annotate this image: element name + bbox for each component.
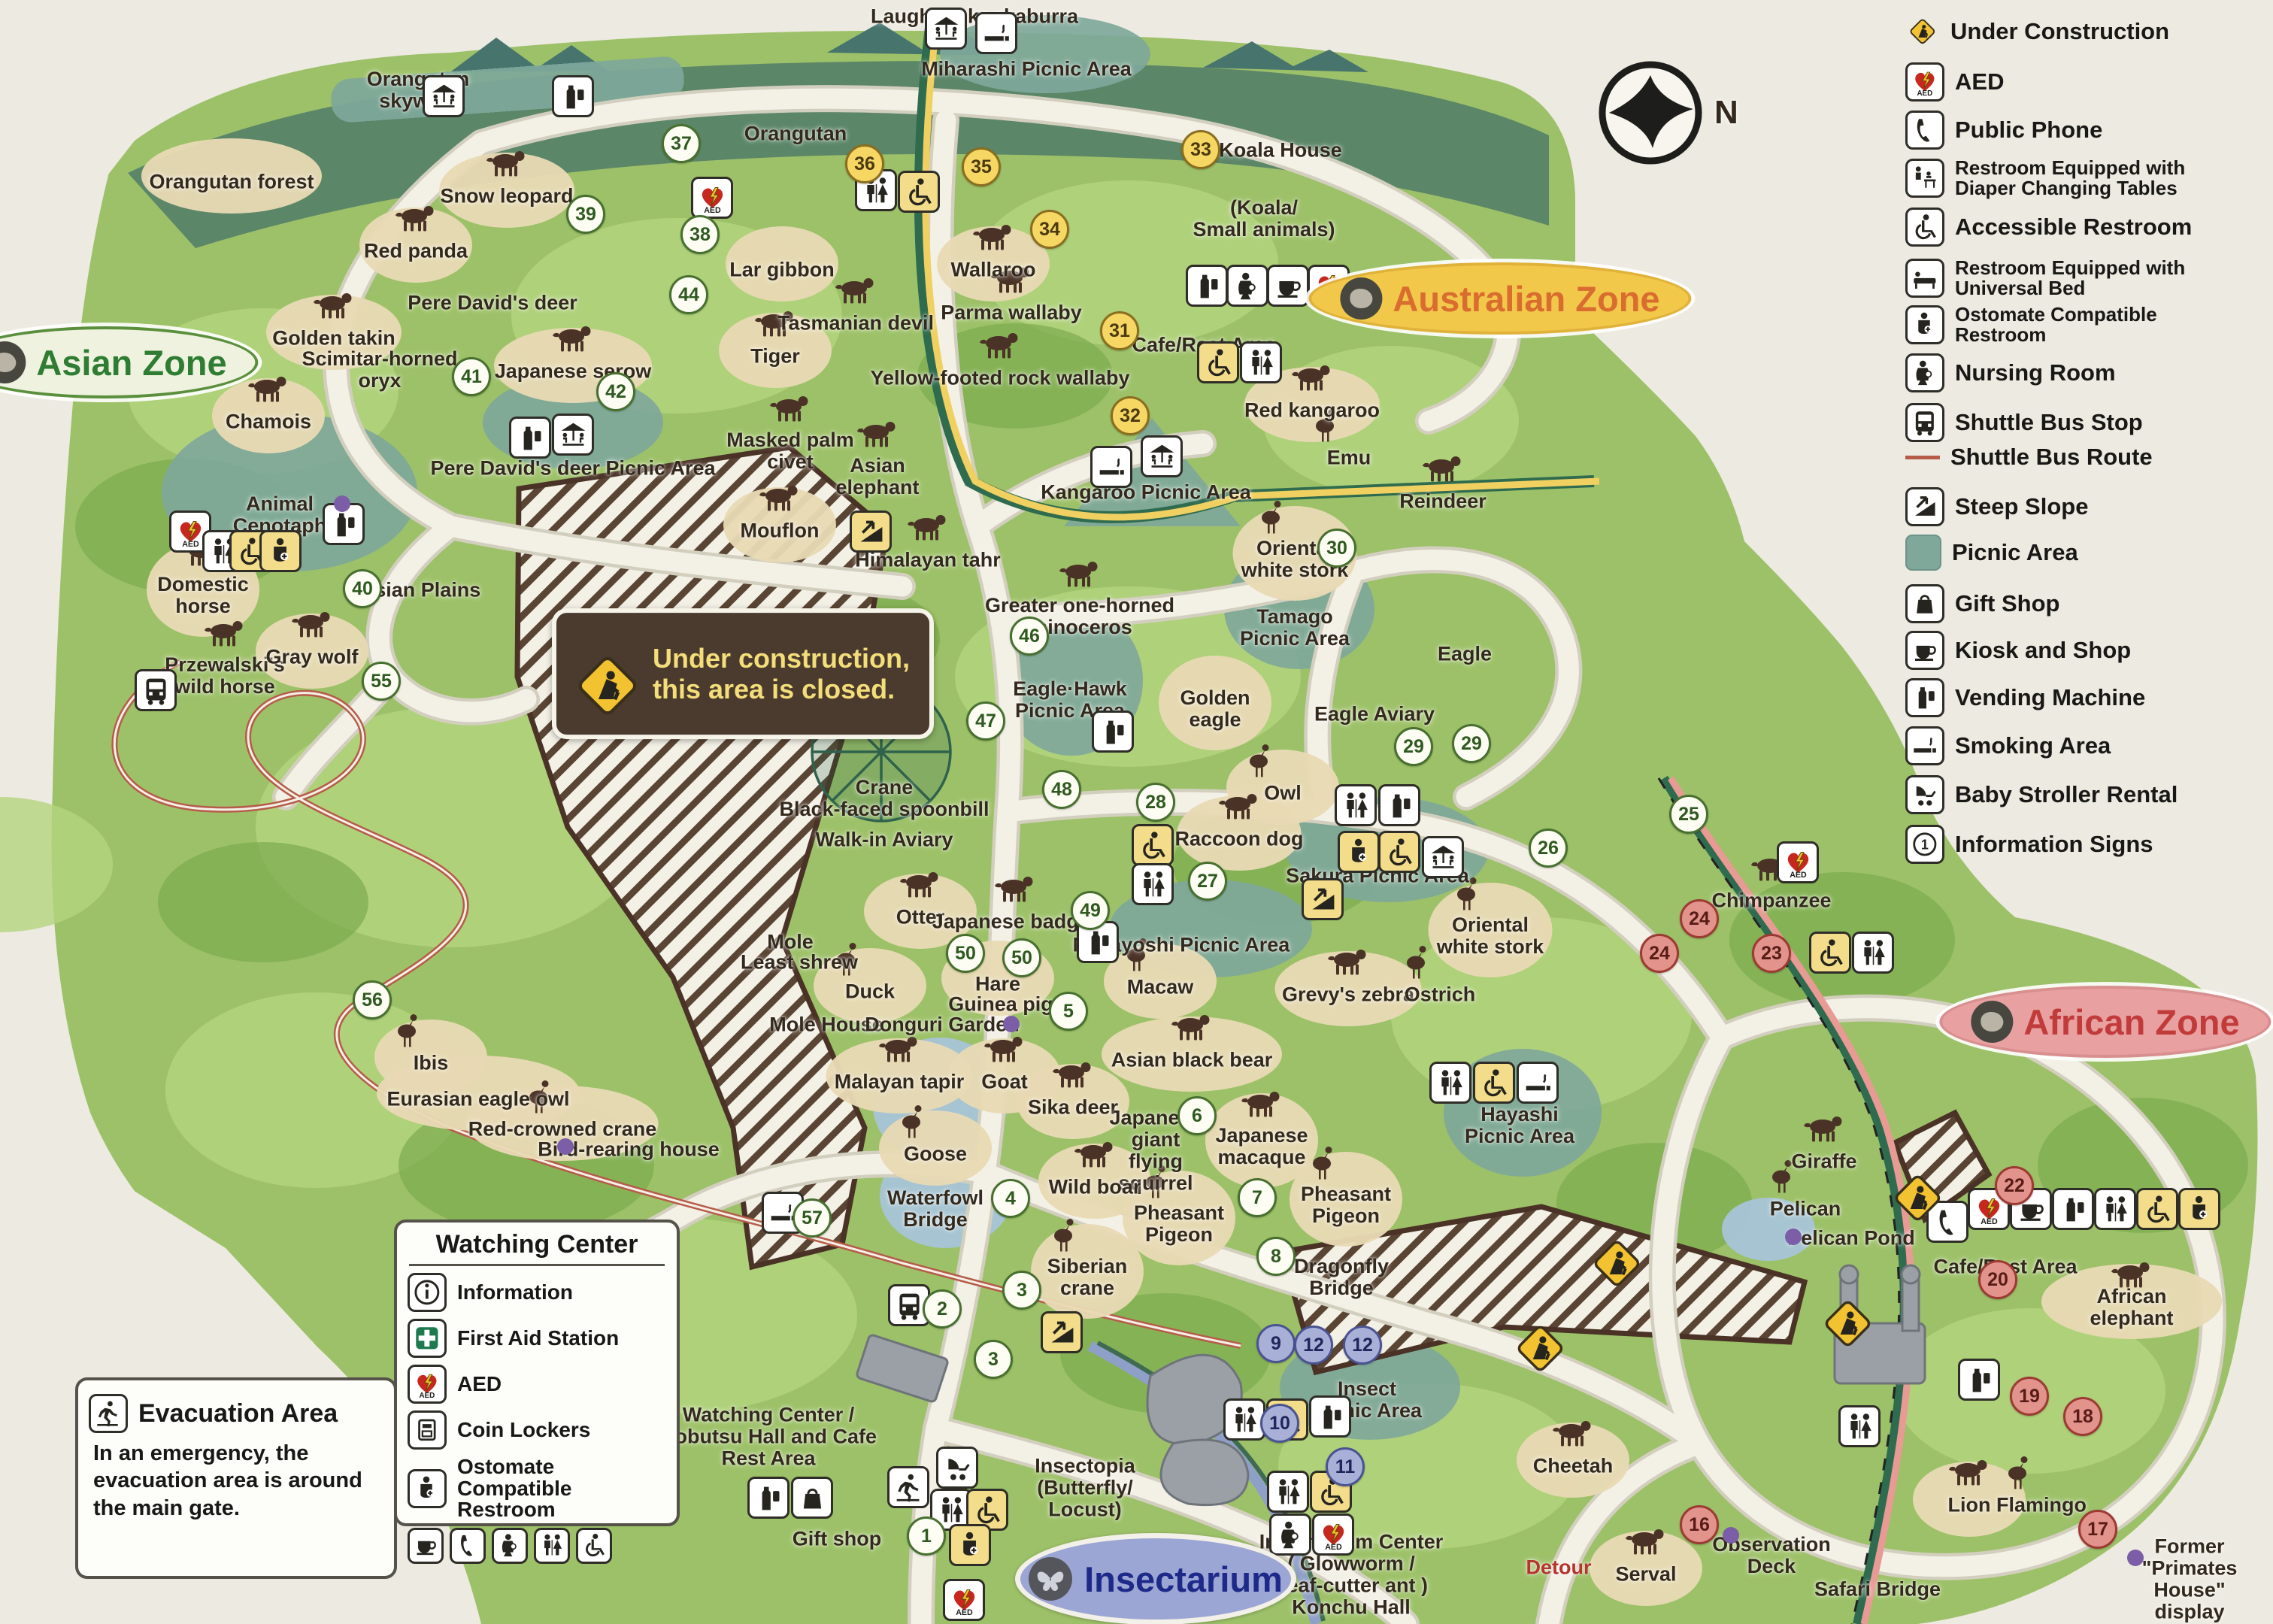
- legend-label: Nursing Room: [1955, 361, 2116, 385]
- animal-bird-silhouette: [392, 1012, 424, 1053]
- map-label: Pere David's deer: [408, 292, 577, 314]
- watching-center-legend-box: Watching CenterInformationFirst Aid Stat…: [394, 1220, 680, 1526]
- legend-item: AEDAED: [1905, 62, 2004, 101]
- animal-quadruped-silhouette: [483, 147, 530, 184]
- map-label: Snow leopard: [440, 186, 573, 208]
- map-label: Miharashi Picnic Area: [921, 59, 1132, 80]
- watching-center-footer-icons: [408, 1528, 666, 1564]
- watching-center-item-label: AED: [457, 1374, 502, 1395]
- zoo-map-canvas: N Under construction, this area is close…: [0, 0, 2273, 1624]
- numbered-marker: 26: [1529, 829, 1568, 868]
- map-label: Former "Primates House" display: [2142, 1535, 2238, 1622]
- animal-quadruped-silhouette: [767, 392, 814, 429]
- animal-quadruped-silhouette: [970, 221, 1017, 258]
- animal-bird-silhouette: [1256, 498, 1288, 540]
- map-label: Macaw: [1127, 977, 1194, 998]
- vending-icon: [1958, 1359, 2000, 1401]
- animal-quadruped-silhouette: [992, 873, 1038, 910]
- animal-quadruped-silhouette: [1056, 558, 1103, 595]
- numbered-marker: 25: [1669, 795, 1708, 834]
- numbered-marker: 39: [566, 195, 605, 234]
- aed-icon: AED: [1905, 62, 1944, 101]
- numbered-marker: 34: [1030, 210, 1069, 249]
- dot-icon: [2127, 1550, 2144, 1566]
- accessible-icon: [1473, 1062, 1515, 1104]
- watching-center-item-label: Information: [457, 1282, 573, 1304]
- accessible-icon: [2136, 1188, 2178, 1230]
- numbered-marker: 29: [1452, 724, 1491, 763]
- legend-label: Shuttle Bus Stop: [1955, 411, 2143, 435]
- map-label: Domestic horse: [157, 574, 249, 617]
- kiosk-icon: [408, 1528, 444, 1564]
- animal-quadruped-silhouette: [1168, 1011, 1215, 1048]
- watching-center-item-label: Ostomate Compatible Restroom: [457, 1456, 666, 1521]
- watching-center-item: Coin Lockers: [408, 1410, 666, 1450]
- map-label: Malayan tapir: [835, 1071, 965, 1093]
- ostomate-icon: [949, 1524, 991, 1566]
- legend-item: Restroom Equipped with Diaper Changing T…: [1905, 158, 2185, 198]
- animal-quadruped-silhouette: [977, 329, 1023, 366]
- numbered-marker: 22: [1995, 1166, 2034, 1205]
- numbered-marker: 18: [2063, 1397, 2102, 1436]
- map-label: Chamois: [226, 411, 311, 433]
- picnic-icon: [1422, 836, 1464, 878]
- numbered-marker: 24: [1640, 934, 1679, 973]
- legend-label: Public Phone: [1955, 118, 2102, 142]
- construction-icon: [1508, 1316, 1571, 1380]
- svg-text:AED: AED: [1981, 1217, 1998, 1225]
- map-label: Goat: [981, 1071, 1028, 1093]
- steep-icon: [1041, 1311, 1083, 1353]
- legend-item: Nursing Room: [1905, 353, 2116, 392]
- nursing-icon: [1226, 265, 1268, 307]
- animal-quadruped-silhouette: [1801, 1113, 1847, 1150]
- under-construction-sign: Under construction, this area is closed.: [552, 608, 934, 739]
- legend-label: Under Construction: [1950, 20, 2169, 44]
- legend-label: Smoking Area: [1955, 734, 2111, 758]
- universalbed-icon: [1905, 259, 1944, 298]
- legend-item: Under Construction: [1905, 14, 2169, 49]
- info-icon: [408, 1273, 447, 1312]
- animal-quadruped-silhouette: [311, 289, 357, 326]
- diaper-icon: [1905, 159, 1944, 198]
- animal-quadruped-silhouette: [1216, 790, 1262, 827]
- map-label: Waterfowl Bridge: [887, 1187, 983, 1231]
- numbered-marker: 10: [1260, 1404, 1299, 1443]
- numbered-marker: 30: [1317, 529, 1356, 568]
- restroom-icon: [2094, 1188, 2136, 1230]
- dot-icon: [1003, 1016, 1020, 1032]
- legend-label: Baby Stroller Rental: [1955, 783, 2178, 807]
- insectarium-label: Insectarium: [1084, 1559, 1283, 1600]
- map-label: Reindeer: [1399, 491, 1487, 513]
- legend-item: Steep Slope: [1905, 487, 2088, 526]
- map-label: Detour: [1526, 1557, 1592, 1579]
- numbered-marker: 23: [1752, 934, 1791, 973]
- map-label: Duck: [845, 981, 895, 1003]
- map-label: Crane Black-faced spoonbill: [779, 777, 989, 820]
- legend-item: Baby Stroller Rental: [1905, 775, 2178, 814]
- animal-quadruped-silhouette: [854, 418, 901, 455]
- map-label: Tamago Picnic Area: [1240, 606, 1350, 650]
- steep-icon: [1302, 878, 1344, 920]
- map-label: Tiger: [750, 346, 800, 368]
- evacuation-text: In an emergency, the evacuation area is …: [93, 1440, 379, 1522]
- compass-n-label: N: [1714, 95, 1738, 130]
- map-label: Gift shop: [793, 1529, 881, 1550]
- map-label: Red kangaroo: [1244, 400, 1380, 422]
- numbered-marker: 35: [962, 147, 1001, 186]
- svg-text:AED: AED: [1325, 1543, 1342, 1550]
- numbered-marker: 44: [669, 275, 708, 314]
- accessible-icon: [1132, 824, 1174, 866]
- map-label: Walk-in Aviary: [815, 829, 953, 851]
- numbered-marker: 2: [923, 1289, 962, 1329]
- nursing-icon: [1905, 353, 1944, 392]
- restroom-icon: [1132, 863, 1174, 905]
- legend-label: Information Signs: [1955, 832, 2153, 856]
- globe-icon: [1971, 1001, 2013, 1043]
- map-label: Pelican: [1770, 1198, 1841, 1220]
- phone-icon: [450, 1528, 486, 1564]
- construction-icon: [1585, 1232, 1648, 1295]
- numbered-marker: 28: [1136, 783, 1175, 822]
- zone-badge: Australian Zone: [1308, 262, 1691, 335]
- picnic-icon: [1141, 435, 1183, 477]
- numbered-marker: 16: [1680, 1505, 1719, 1544]
- map-label: Parma wallaby: [941, 302, 1082, 324]
- compass-bird-icon: [1594, 56, 1707, 169]
- numbered-marker: 5: [1049, 992, 1088, 1031]
- zone-label: African Zone: [2023, 1001, 2239, 1043]
- accessible-icon: [1809, 932, 1851, 974]
- map-label: Japanese macaque: [1215, 1125, 1308, 1168]
- animal-quadruped-silhouette: [1550, 1417, 1596, 1454]
- numbered-marker: 49: [1071, 891, 1110, 930]
- animal-quadruped-silhouette: [1289, 362, 1335, 398]
- bus-icon: [1905, 403, 1944, 442]
- map-label: Masked palm civet: [726, 429, 854, 473]
- aed-icon: AED: [1777, 841, 1819, 883]
- smoking-icon: [1905, 726, 1944, 765]
- map-label: Guinea pig: [948, 994, 1053, 1016]
- map-label: Insectopia (Butterfly/ Locust): [1035, 1456, 1135, 1521]
- watching-center-item: Ostomate Compatible Restroom: [408, 1456, 666, 1521]
- numbered-marker: 47: [966, 701, 1005, 741]
- numbered-marker: 56: [353, 980, 392, 1020]
- dot-icon: [1723, 1527, 1739, 1544]
- vending-icon: [1092, 710, 1134, 753]
- map-label: Scimitar-horned oryx: [302, 348, 457, 392]
- legend-label: Shuttle Bus Route: [1950, 445, 2153, 469]
- numbered-marker: 3: [1002, 1271, 1041, 1310]
- numbered-marker: 19: [2010, 1377, 2049, 1416]
- animal-quadruped-silhouette: [1946, 1456, 1993, 1493]
- legend-item: Shuttle Bus Stop: [1905, 403, 2143, 442]
- map-label: Sika deer: [1028, 1097, 1118, 1119]
- map-label: Wallaroo: [950, 259, 1035, 281]
- map-label: Yellow-footed rock wallaby: [870, 368, 1129, 389]
- under-construction-text: Under construction, this area is closed.: [653, 643, 910, 705]
- numbered-marker: 46: [1010, 617, 1049, 656]
- animal-quadruped-silhouette: [392, 202, 439, 239]
- numbered-marker: 48: [1042, 770, 1081, 809]
- gift-icon: [1905, 584, 1944, 623]
- accessible-icon: [1197, 341, 1239, 383]
- restroom-icon: [534, 1528, 570, 1564]
- legend-item: Shuttle Bus Route: [1905, 445, 2153, 469]
- map-label: Pelican Pond: [1787, 1228, 1915, 1250]
- aed-icon: AED: [691, 177, 733, 219]
- animal-bird-silhouette: [2003, 1454, 2035, 1495]
- map-label: Pere David's deer Picnic Area: [430, 458, 715, 480]
- picnic-icon: [423, 75, 465, 117]
- kiosk-icon: [1267, 265, 1309, 307]
- nursing-icon: [1269, 1513, 1311, 1556]
- animal-quadruped-silhouette: [1623, 1526, 1669, 1562]
- animal-quadruped-silhouette: [245, 373, 292, 410]
- legend-item: Ostomate Compatible Restroom: [1905, 304, 2157, 345]
- butterfly-icon: [1029, 1557, 1072, 1601]
- map-label: Owl: [1264, 783, 1302, 804]
- kiosk-icon: [1905, 631, 1944, 670]
- legend-item: Vending Machine: [1905, 678, 2145, 717]
- ostomate-icon: [1905, 305, 1944, 344]
- animal-bird-silhouette: [1244, 742, 1276, 783]
- accessible-icon: [898, 171, 940, 213]
- numbered-marker: 41: [452, 357, 491, 396]
- stroller-icon: [936, 1447, 978, 1489]
- legend-label: Restroom Equipped with Universal Bed: [1955, 258, 2185, 298]
- map-label: Giraffe: [1791, 1151, 1856, 1173]
- watching-center-item-label: Coin Lockers: [457, 1419, 590, 1441]
- numbered-marker: 33: [1181, 130, 1220, 169]
- map-label: Least shrew: [741, 952, 858, 974]
- map-label: Red panda: [364, 241, 468, 262]
- map-label: Donguri Garden: [865, 1014, 1020, 1036]
- aed-icon: AED: [943, 1579, 985, 1621]
- svg-text:AED: AED: [1790, 871, 1807, 878]
- watching-center-item: Information: [408, 1273, 666, 1312]
- legend-item: Kiosk and Shop: [1905, 631, 2131, 670]
- globe-icon: [1340, 277, 1382, 320]
- map-label: Ostrich: [1405, 984, 1476, 1006]
- stroller-icon: [1905, 775, 1944, 814]
- map-label: Asian black bear: [1111, 1050, 1273, 1071]
- map-label: Pheasant Pigeon: [1134, 1202, 1224, 1246]
- numbered-marker: 38: [680, 215, 720, 254]
- map-label: Raccoon dog: [1174, 829, 1303, 850]
- vending-icon: [1186, 265, 1228, 307]
- phone-icon: [1905, 111, 1944, 150]
- compass: N: [1594, 56, 1738, 169]
- ostomate-icon: [408, 1469, 447, 1508]
- restroom-icon: [1335, 784, 1377, 826]
- legend-item: Gift Shop: [1905, 584, 2059, 623]
- vending-icon: [509, 417, 551, 459]
- accessible-icon: [1378, 831, 1420, 873]
- numbered-marker: 50: [1002, 938, 1041, 977]
- numbered-marker: 4: [991, 1179, 1030, 1218]
- numbered-marker: 50: [946, 934, 985, 973]
- vending-icon: [2052, 1188, 2094, 1230]
- map-label: (Koala/ Small animals): [1193, 197, 1335, 241]
- gift-icon: [791, 1477, 833, 1519]
- map-label: Koala House: [1219, 140, 1342, 162]
- animal-quadruped-silhouette: [550, 323, 596, 359]
- map-label: Pheasant Pigeon: [1301, 1183, 1391, 1227]
- map-label: African elephant: [2061, 1286, 2202, 1329]
- svg-text:AED: AED: [1917, 89, 1933, 96]
- map-label: Oriental white stork: [1437, 914, 1544, 958]
- map-label: Dragonfly Bridge: [1294, 1256, 1389, 1299]
- svg-text:1: 1: [1921, 838, 1929, 853]
- map-label: Asian elephant: [835, 455, 919, 498]
- animal-quadruped-silhouette: [876, 1033, 923, 1070]
- svg-text:AED: AED: [182, 540, 199, 547]
- animal-quadruped-silhouette: [1050, 1059, 1096, 1095]
- legend-label: Kiosk and Shop: [1955, 638, 2131, 662]
- numbered-marker: 40: [343, 569, 382, 608]
- numbered-marker: 20: [1978, 1260, 2017, 1299]
- zone-label: Australian Zone: [1393, 278, 1659, 320]
- svg-text:AED: AED: [956, 1608, 973, 1616]
- animal-quadruped-silhouette: [202, 617, 248, 654]
- animal-quadruped-silhouette: [905, 511, 951, 548]
- vending-icon: [552, 75, 594, 117]
- ostomate-icon: [1338, 831, 1380, 873]
- bus-icon: [135, 669, 177, 711]
- ostomate-icon: [259, 530, 302, 572]
- animal-bird-silhouette: [1402, 944, 1433, 985]
- infosign-icon: 1: [1905, 825, 1944, 864]
- smoking-icon: [1517, 1062, 1559, 1104]
- map-label: Watching Center / Dobutsu Hall and Cafe …: [660, 1404, 877, 1470]
- numbered-marker: 24: [1680, 899, 1719, 938]
- map-label: Gray wolf: [265, 647, 358, 668]
- numbered-marker: 42: [596, 372, 635, 411]
- numbered-marker: 6: [1177, 1096, 1217, 1135]
- picnic-icon: [552, 414, 594, 456]
- numbered-marker: 29: [1394, 727, 1433, 766]
- restroom-icon: [1852, 932, 1894, 974]
- evacuation-area-box: Evacuation AreaIn an emergency, the evac…: [75, 1377, 397, 1579]
- aed-icon: AED: [1312, 1513, 1354, 1556]
- numbered-marker: 3: [974, 1340, 1013, 1379]
- construction-icon: [1886, 1166, 1949, 1229]
- numbered-marker: 12: [1294, 1326, 1333, 1365]
- restroom-icon: [1838, 1405, 1881, 1447]
- insectarium-badge: Insectarium: [1015, 1533, 1296, 1624]
- nursing-icon: [492, 1528, 528, 1564]
- map-label: Hayashi Picnic Area: [1465, 1104, 1574, 1147]
- steep-icon: [850, 511, 892, 553]
- animal-quadruped-silhouette: [1325, 946, 1371, 983]
- accessible-icon: [1905, 208, 1944, 247]
- map-label: Golden eagle: [1180, 687, 1250, 731]
- map-label: Siberian crane: [1047, 1256, 1128, 1299]
- numbered-marker: 57: [793, 1198, 832, 1238]
- numbered-marker: 11: [1326, 1447, 1365, 1486]
- legend-label: Steep Slope: [1955, 495, 2088, 519]
- map-label: Hare: [975, 974, 1020, 995]
- animal-bird-silhouette: [1308, 1144, 1339, 1186]
- numbered-marker: 27: [1188, 862, 1227, 901]
- vending-icon: [1905, 678, 1944, 717]
- animal-quadruped-silhouette: [832, 274, 879, 311]
- legend-item: Smoking Area: [1905, 726, 2111, 765]
- legend-label: Ostomate Compatible Restroom: [1955, 304, 2157, 345]
- legend-label: Vending Machine: [1955, 686, 2145, 710]
- numbered-marker: 31: [1100, 311, 1139, 350]
- map-label: Tasmanian devil: [777, 313, 934, 335]
- restroom-icon: [1429, 1062, 1471, 1104]
- dot-icon: [1785, 1229, 1802, 1245]
- zone-badge: African Zone: [1939, 986, 2271, 1058]
- legend-label: Gift Shop: [1955, 592, 2059, 616]
- map-label: Wild boar: [1049, 1177, 1141, 1198]
- map-label: Golden takin: [272, 328, 396, 350]
- numbered-marker: 8: [1256, 1237, 1296, 1276]
- map-label: Eagle: [1438, 644, 1492, 665]
- picnic-icon: [925, 8, 967, 50]
- accessible-icon: [576, 1528, 612, 1564]
- zone-label: Asian Zone: [36, 342, 226, 383]
- map-label: Orangutan: [744, 123, 847, 145]
- map-label: Serval: [1615, 1564, 1676, 1586]
- restroom-icon: [1267, 1471, 1309, 1513]
- map-label: Laughing kookaburra: [871, 6, 1078, 28]
- map-label: Kangaroo Picnic Area: [1041, 482, 1251, 504]
- vending-icon: [1378, 784, 1420, 826]
- map-label: Grevy's zebra: [1282, 984, 1414, 1006]
- map-label: Flamingo: [1996, 1495, 2087, 1516]
- globe-icon: [0, 341, 26, 383]
- map-label: Lion: [1948, 1495, 1991, 1516]
- restroom-icon: [1223, 1398, 1265, 1441]
- legend-item: Public Phone: [1905, 111, 2102, 150]
- firstaid-icon: [408, 1319, 447, 1358]
- map-label: Chimpanzee: [1711, 890, 1831, 912]
- construction-icon: [1816, 1292, 1879, 1355]
- animal-quadruped-silhouette: [756, 482, 803, 519]
- animal-quadruped-silhouette: [981, 1033, 1028, 1070]
- map-label: Safari Bridge: [1814, 1579, 1941, 1601]
- steep-icon: [1905, 487, 1944, 526]
- evac-icon: [887, 1466, 929, 1508]
- restroom-icon: [1240, 341, 1282, 383]
- animal-quadruped-silhouette: [1420, 453, 1466, 489]
- construction-icon: [1905, 14, 1940, 49]
- watching-center-item: AEDAED: [408, 1365, 666, 1404]
- legend-label: Picnic Area: [1952, 541, 2078, 565]
- legend-label: AED: [1955, 70, 2004, 94]
- smoking-icon: [1090, 446, 1132, 488]
- numbered-marker: 37: [662, 124, 701, 163]
- legend-item: Restroom Equipped with Universal Bed: [1905, 258, 2185, 298]
- legend-item: Accessible Restroom: [1905, 208, 2192, 247]
- locker-icon: [408, 1410, 447, 1450]
- numbered-marker: 12: [1343, 1326, 1382, 1365]
- map-label: Mole: [767, 932, 814, 953]
- ostomate-icon: [2178, 1188, 2220, 1230]
- numbered-marker: 17: [2078, 1510, 2117, 1549]
- numbered-marker: 9: [1256, 1324, 1296, 1363]
- watching-center-title: Watching Center: [397, 1230, 677, 1259]
- map-label: Emu: [1327, 447, 1371, 469]
- picnic-area-swatch: [1905, 535, 1941, 571]
- map-label: Lar gibbon: [729, 259, 834, 281]
